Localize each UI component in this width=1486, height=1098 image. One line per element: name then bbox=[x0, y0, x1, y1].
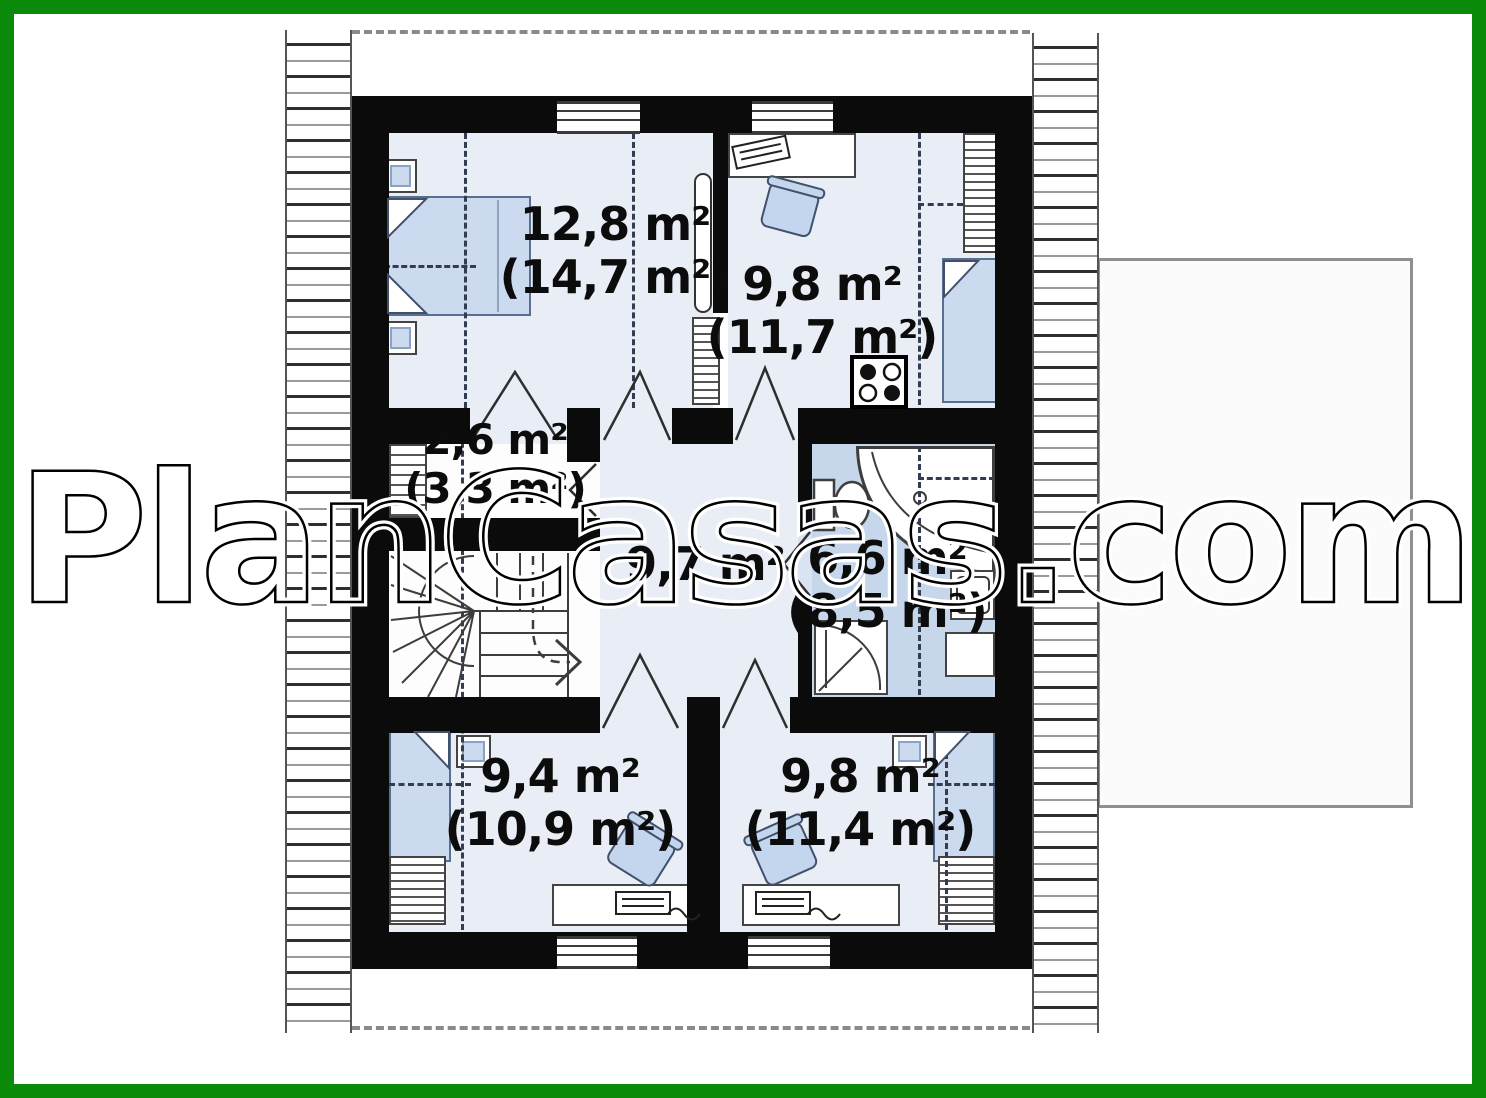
floor-plan-canvas: 12,8 m² (14,7 m²) 9,8 m² (11,7 m²) 2,6 m… bbox=[0, 0, 1486, 1098]
green-border-frame bbox=[0, 0, 1486, 1098]
